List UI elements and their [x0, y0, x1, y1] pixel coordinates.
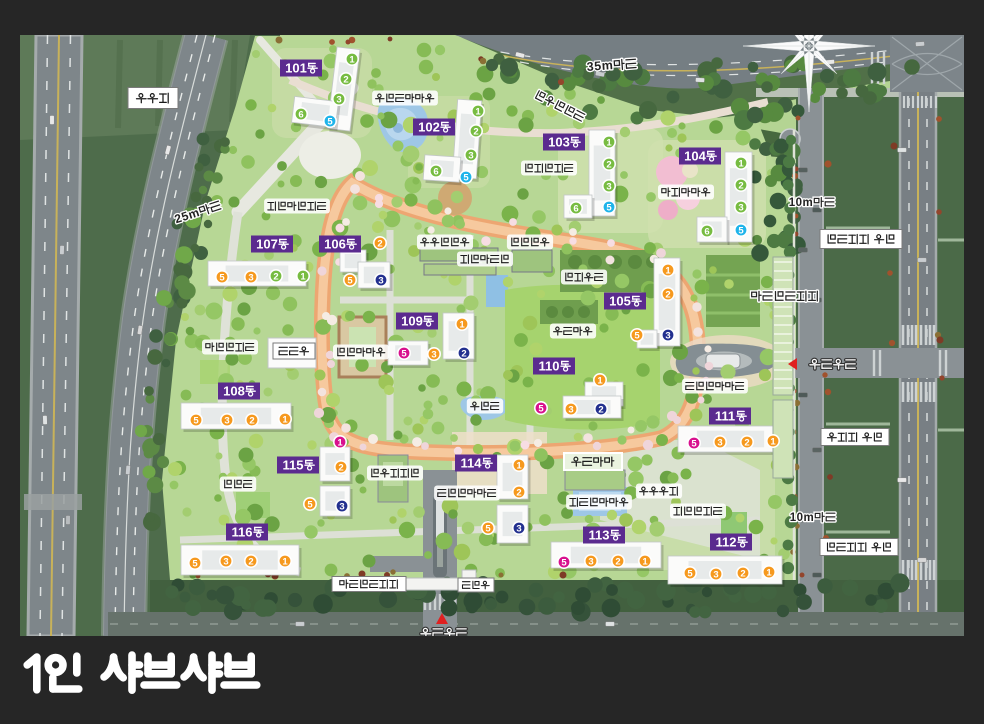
svg-text:102: 102 [418, 120, 440, 135]
svg-text:3: 3 [431, 349, 436, 360]
svg-text:108: 108 [223, 384, 245, 399]
svg-text:m: m [803, 197, 813, 209]
svg-text:5: 5 [193, 415, 199, 426]
svg-text:2: 2 [516, 487, 521, 498]
svg-text:3: 3 [336, 94, 341, 105]
svg-text:5: 5 [606, 202, 612, 213]
svg-text:115: 115 [283, 458, 304, 473]
svg-text:112: 112 [716, 535, 737, 550]
svg-text:114: 114 [461, 456, 483, 471]
svg-text:2: 2 [740, 568, 745, 579]
svg-text:5: 5 [307, 499, 313, 510]
svg-text:1: 1 [597, 375, 603, 386]
svg-text:5: 5 [327, 116, 333, 127]
svg-text:2: 2 [473, 126, 478, 137]
svg-text:1: 1 [475, 106, 481, 117]
svg-text:2: 2 [461, 348, 466, 359]
svg-text:116: 116 [232, 525, 253, 540]
svg-text:5: 5 [634, 330, 640, 341]
svg-text:106: 106 [324, 237, 346, 252]
svg-text:3: 3 [738, 202, 743, 213]
svg-text:3: 3 [339, 501, 344, 512]
svg-text:6: 6 [298, 109, 303, 120]
svg-text:5: 5 [347, 275, 353, 286]
svg-text:1: 1 [642, 556, 648, 567]
svg-text:1: 1 [282, 556, 288, 567]
svg-text:1: 1 [770, 436, 776, 447]
svg-text:105: 105 [609, 294, 631, 309]
svg-text:3: 3 [248, 272, 253, 283]
svg-text:5: 5 [401, 348, 407, 359]
svg-text:6: 6 [433, 166, 438, 177]
svg-text:109: 109 [401, 314, 423, 329]
svg-text:3: 3 [717, 437, 722, 448]
svg-text:3: 3 [224, 415, 229, 426]
svg-text:1: 1 [665, 265, 671, 276]
svg-text:1: 1 [282, 414, 288, 425]
svg-text:6: 6 [704, 226, 709, 237]
svg-text:5: 5 [691, 438, 697, 449]
svg-text:2: 2 [273, 271, 278, 282]
svg-text:2: 2 [615, 556, 620, 567]
svg-text:111: 111 [715, 409, 735, 424]
svg-text:5: 5 [738, 225, 744, 236]
svg-text:1: 1 [349, 54, 355, 65]
svg-text:5: 5 [485, 523, 491, 534]
svg-text:2: 2 [343, 74, 348, 85]
svg-text:107: 107 [256, 237, 278, 252]
svg-text:2: 2 [377, 238, 382, 249]
svg-text:1: 1 [337, 437, 343, 448]
svg-text:2: 2 [738, 180, 743, 191]
svg-text:1: 1 [459, 319, 465, 330]
svg-text:m: m [804, 512, 814, 524]
svg-text:5: 5 [192, 558, 198, 569]
svg-text:3: 3 [568, 404, 573, 415]
svg-text:113: 113 [589, 528, 610, 543]
svg-text:5: 5 [538, 403, 544, 414]
svg-text:0: 0 [797, 512, 803, 524]
svg-text:2: 2 [248, 556, 253, 567]
svg-text:3: 3 [378, 275, 383, 286]
svg-text:0: 0 [796, 197, 802, 209]
svg-text:2: 2 [598, 404, 603, 415]
svg-text:5: 5 [687, 568, 693, 579]
svg-text:1: 1 [766, 567, 772, 578]
svg-text:104: 104 [684, 149, 706, 164]
svg-text:2: 2 [249, 415, 254, 426]
svg-text:3: 3 [468, 150, 473, 161]
svg-text:2: 2 [744, 437, 749, 448]
svg-text:3: 3 [665, 330, 670, 341]
svg-text:5: 5 [463, 172, 469, 183]
svg-text:2: 2 [606, 159, 611, 170]
svg-text:3: 3 [713, 569, 718, 580]
svg-text:3: 3 [223, 556, 228, 567]
svg-text:1: 1 [738, 158, 744, 169]
svg-text:1: 1 [300, 271, 306, 282]
svg-text:110: 110 [539, 359, 560, 374]
svg-text:2: 2 [665, 289, 670, 300]
svg-text:5: 5 [561, 557, 567, 568]
svg-text:1: 1 [516, 460, 522, 471]
svg-text:3: 3 [606, 181, 611, 192]
svg-text:1: 1 [606, 137, 612, 148]
svg-text:6: 6 [573, 203, 578, 214]
svg-text:101: 101 [285, 61, 307, 76]
svg-text:3: 3 [588, 556, 593, 567]
svg-text:5: 5 [219, 272, 225, 283]
svg-text:103: 103 [548, 135, 570, 150]
svg-text:m: m [601, 58, 613, 73]
svg-text:3: 3 [516, 523, 521, 534]
svg-text:2: 2 [338, 462, 343, 473]
